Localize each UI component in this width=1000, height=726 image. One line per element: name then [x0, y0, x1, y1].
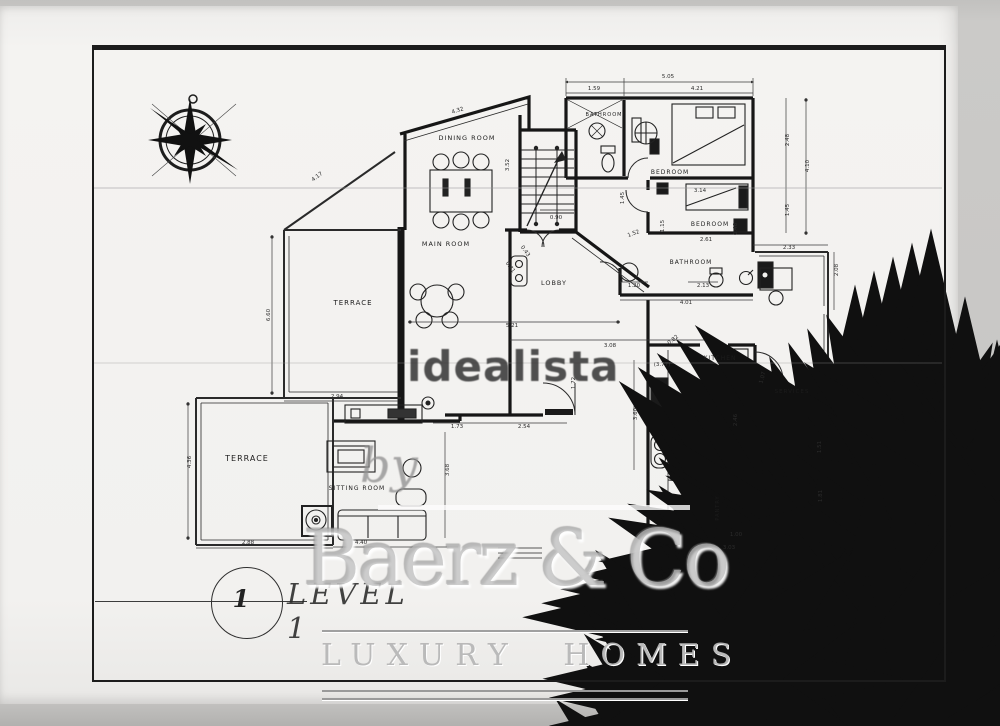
dim-label: 5.05	[662, 74, 675, 80]
dim-label: 1.73	[451, 424, 464, 430]
room-label: BEDROOM	[651, 169, 689, 176]
dim-label: 0.90	[550, 215, 563, 221]
compass-rose-icon	[148, 95, 238, 184]
dim-label: 3.52	[505, 159, 511, 171]
dim-label: 0.46	[733, 222, 739, 235]
room-label: BEDROOM	[691, 221, 729, 228]
watermark-tagline: LUXURY HOMES	[321, 638, 742, 673]
dim-label: 2.08	[834, 263, 840, 276]
dim-label: 2.46	[733, 413, 739, 426]
dim-label: 2.13	[697, 283, 710, 289]
dim-label: 1.00	[730, 532, 743, 538]
dim-label: 2.61	[700, 237, 712, 243]
room-label: MAIN ROOM	[422, 240, 470, 248]
scan-streak	[378, 505, 690, 510]
dim-label: 2.48	[785, 133, 791, 146]
watermark-idealista: idealista	[407, 342, 620, 391]
watermark-by: by	[360, 438, 418, 494]
dim-label: 1.15	[660, 219, 666, 232]
dim-label: 1.81	[818, 490, 824, 502]
dim-label: 3.68	[445, 463, 451, 476]
room-label: TERRACE	[224, 454, 269, 463]
scan-crease-line	[92, 187, 942, 189]
watermark-brand: Baerz & Co	[303, 514, 727, 604]
dim-label: 1.52	[627, 229, 641, 239]
dim-label: 2.33	[783, 245, 796, 251]
dim-label: 5.21	[506, 323, 518, 329]
dim-label: 4.21	[691, 86, 703, 92]
door-sill	[545, 409, 573, 415]
dim-label: 2.88	[242, 540, 255, 546]
room-label: BATHROOM	[670, 259, 713, 266]
dim-label: 3.60	[633, 407, 639, 420]
dim-label: 4.36	[187, 455, 193, 468]
room-label: BATHROOM	[586, 112, 623, 118]
room-label: TERRACE	[332, 299, 372, 307]
tagline-rule-bottom	[322, 690, 688, 700]
dim-label: 1.20	[628, 283, 641, 289]
scanned-floorplan-page: { "level": { "number": "1", "label": "LE…	[0, 0, 1000, 726]
dim-label: 1.45	[785, 203, 791, 216]
dim-label: 4.10	[805, 159, 811, 172]
tagline-rule-top	[322, 630, 688, 632]
dim-label: 4.32	[451, 106, 464, 115]
dim-label: 4.01	[680, 300, 692, 306]
dim-label: 2.54	[518, 424, 531, 430]
room-label: SERVICES	[775, 389, 810, 395]
dim-label: 1.45	[620, 191, 626, 204]
room-label: LOBBY	[541, 279, 567, 287]
dim-label: 1.59	[588, 86, 601, 92]
dim-label: 6.60	[266, 308, 272, 321]
dim-label: 4.17	[311, 171, 325, 183]
dim-label: 0.41	[504, 261, 516, 274]
level-number: 1	[224, 584, 258, 613]
dim-label: 1.51	[817, 441, 823, 453]
room-label: KITCHEN	[704, 355, 737, 362]
dim-label: 2.94	[331, 394, 344, 400]
room-label: DINING ROOM	[438, 134, 495, 142]
